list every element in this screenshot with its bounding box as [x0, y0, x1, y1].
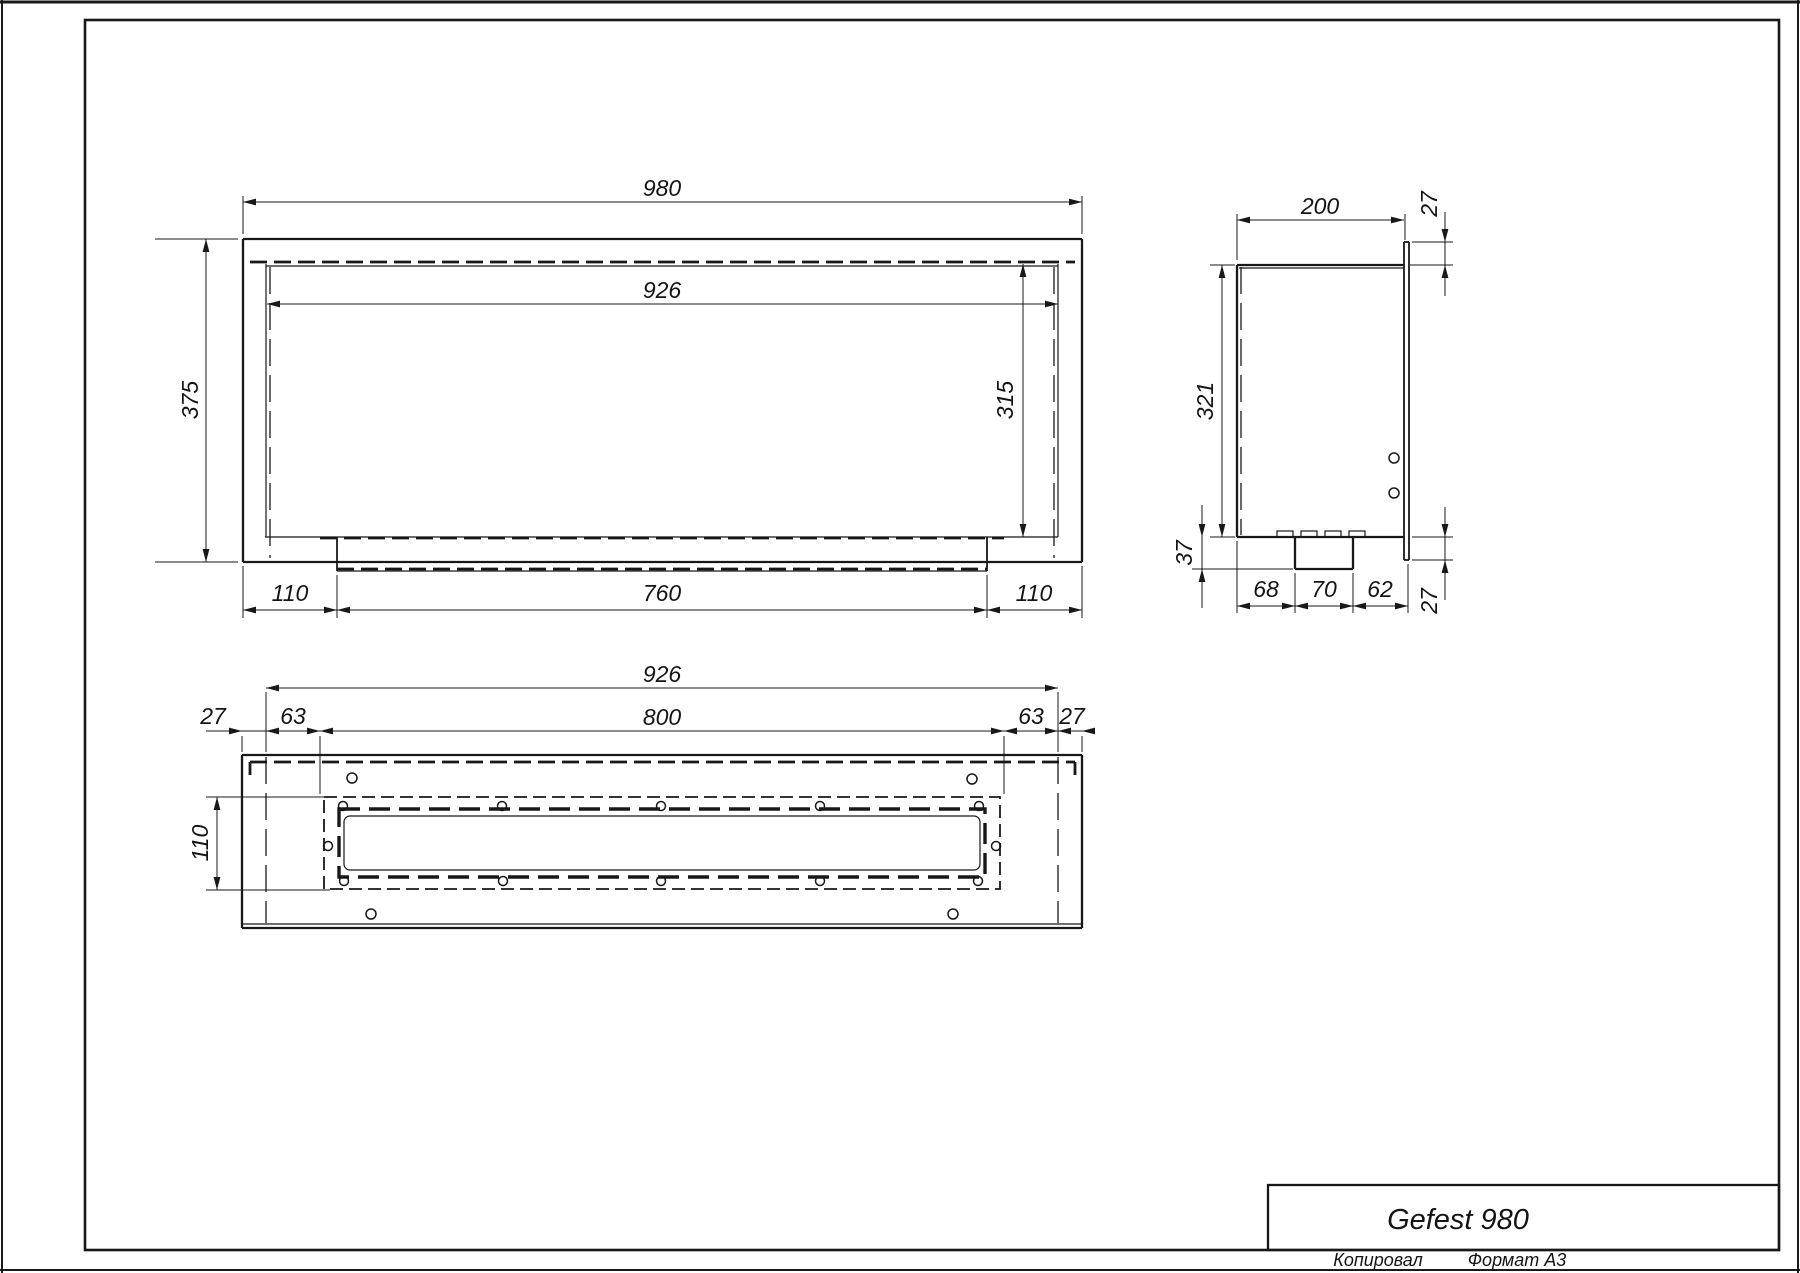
bottom-view: [242, 755, 1082, 928]
dim-bottom-offset-right: 63: [1018, 703, 1044, 729]
dim-front-overall-height: 375: [177, 381, 203, 420]
dim-side-burner-depth: 37: [1171, 539, 1197, 566]
dim-bottom-edge-left: 27: [199, 703, 227, 729]
format-label: Формат A3: [1468, 1250, 1567, 1270]
bottom-view-dimensions: 926 27 63 800 63 27 110: [187, 661, 1095, 890]
drawing-title: Gefest 980: [1387, 1204, 1529, 1236]
dim-front-opening-width: 926: [643, 277, 682, 303]
side-view-dimensions: 200 27 321 37 68 70 62 27: [1171, 190, 1453, 615]
technical-drawing: 980 926 375 315 110 760 110: [0, 0, 1800, 1273]
sheet-edges: [0, 0, 1800, 1273]
dim-side-depth: 200: [1300, 193, 1340, 219]
dim-front-bottom-center: 760: [643, 580, 682, 606]
dim-side-top-flange: 27: [1416, 190, 1442, 218]
dim-bottom-offset-left: 63: [280, 703, 306, 729]
side-view: [1237, 242, 1409, 569]
sheet-frame: [85, 20, 1779, 1250]
dim-bottom-cutout-width: 110: [187, 824, 213, 861]
dim-side-bottom-left: 68: [1253, 576, 1279, 602]
dim-front-overall-width: 980: [643, 175, 682, 201]
copied-by-label: Копировал: [1333, 1250, 1423, 1270]
dim-side-bottom-center: 70: [1311, 576, 1337, 602]
drawing-sheet: 980 926 375 315 110 760 110: [0, 0, 1800, 1273]
dim-bottom-edge-right: 27: [1058, 703, 1086, 729]
dim-bottom-opening-width: 926: [643, 661, 682, 687]
dim-bottom-cutout-length: 800: [643, 704, 682, 730]
dim-side-bottom-right: 62: [1367, 576, 1393, 602]
title-block: Gefest 980 Копировал Формат A3: [1268, 1185, 1779, 1270]
dim-side-bottom-flange: 27: [1416, 587, 1442, 615]
front-view-dimensions: 980 926 375 315 110 760 110: [155, 175, 1082, 618]
dim-front-bottom-right: 110: [1016, 580, 1053, 606]
dim-side-opening-height: 321: [1192, 382, 1218, 420]
dim-front-opening-height: 315: [992, 381, 1018, 420]
dim-front-bottom-left: 110: [272, 580, 309, 606]
